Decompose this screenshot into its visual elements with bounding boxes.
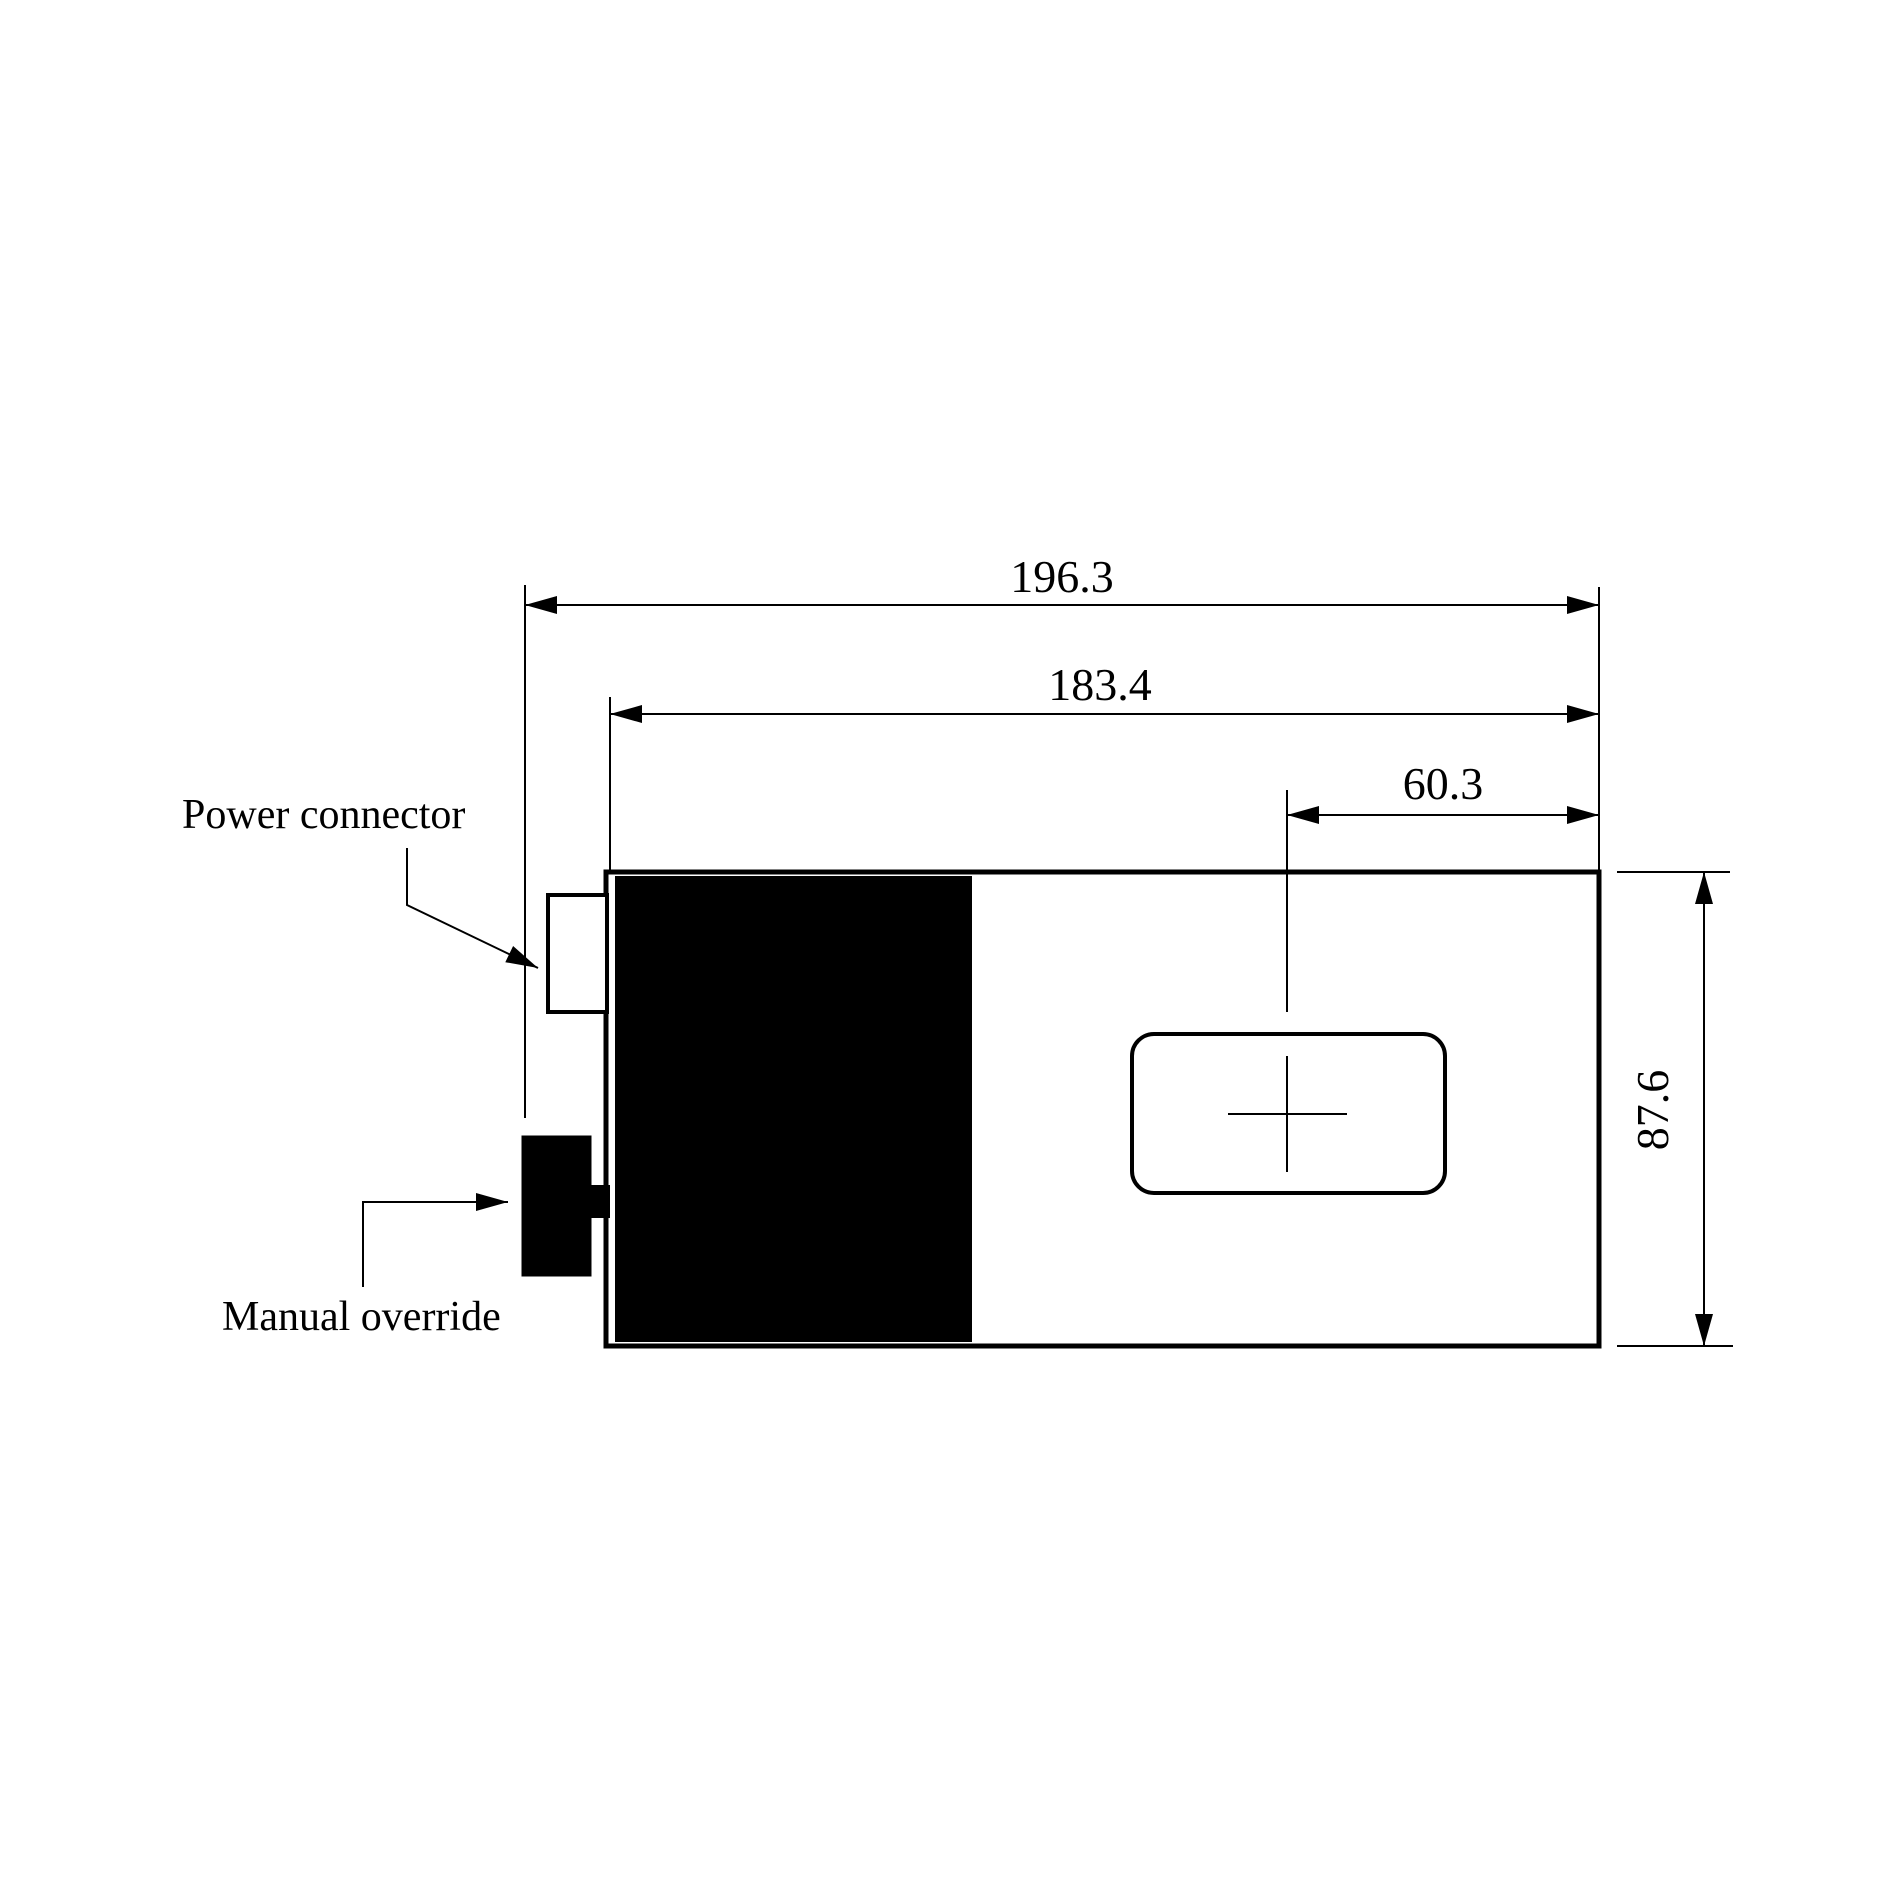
body-black-section [615,876,972,1342]
power-connector-leader-line [407,848,538,968]
arrowhead-height-bottom [1695,1314,1713,1346]
manual-override-label: Manual override [222,1294,501,1340]
arrowhead-overall-right [1567,596,1599,614]
arrowhead-offset-left [1287,806,1319,824]
dim-label-body-length: 183.4 [1048,659,1152,710]
arrowhead-body-right [1567,705,1599,723]
power-connector-rect [548,895,607,1012]
arrowhead-offset-right [1567,806,1599,824]
drawing-svg: 196.3 183.4 60.3 87.6 Power connector Ma… [0,0,1900,1900]
technical-drawing: 196.3 183.4 60.3 87.6 Power connector Ma… [0,0,1900,1900]
arrowhead-overall-left [525,596,557,614]
dim-label-overall-length: 196.3 [1010,551,1114,602]
dim-label-body-height: 87.6 [1627,1070,1678,1151]
manual-override-knob [523,1137,590,1275]
manual-override-stem [588,1185,610,1218]
manual-override-leader-line [363,1202,508,1287]
arrowhead-body-left [610,705,642,723]
arrowhead-height-top [1695,872,1713,904]
dim-label-window-offset: 60.3 [1403,758,1484,809]
power-connector-label: Power connector [182,792,465,838]
manual-override-leader-arrowhead [476,1193,508,1211]
power-connector-leader-arrowhead [505,946,538,968]
